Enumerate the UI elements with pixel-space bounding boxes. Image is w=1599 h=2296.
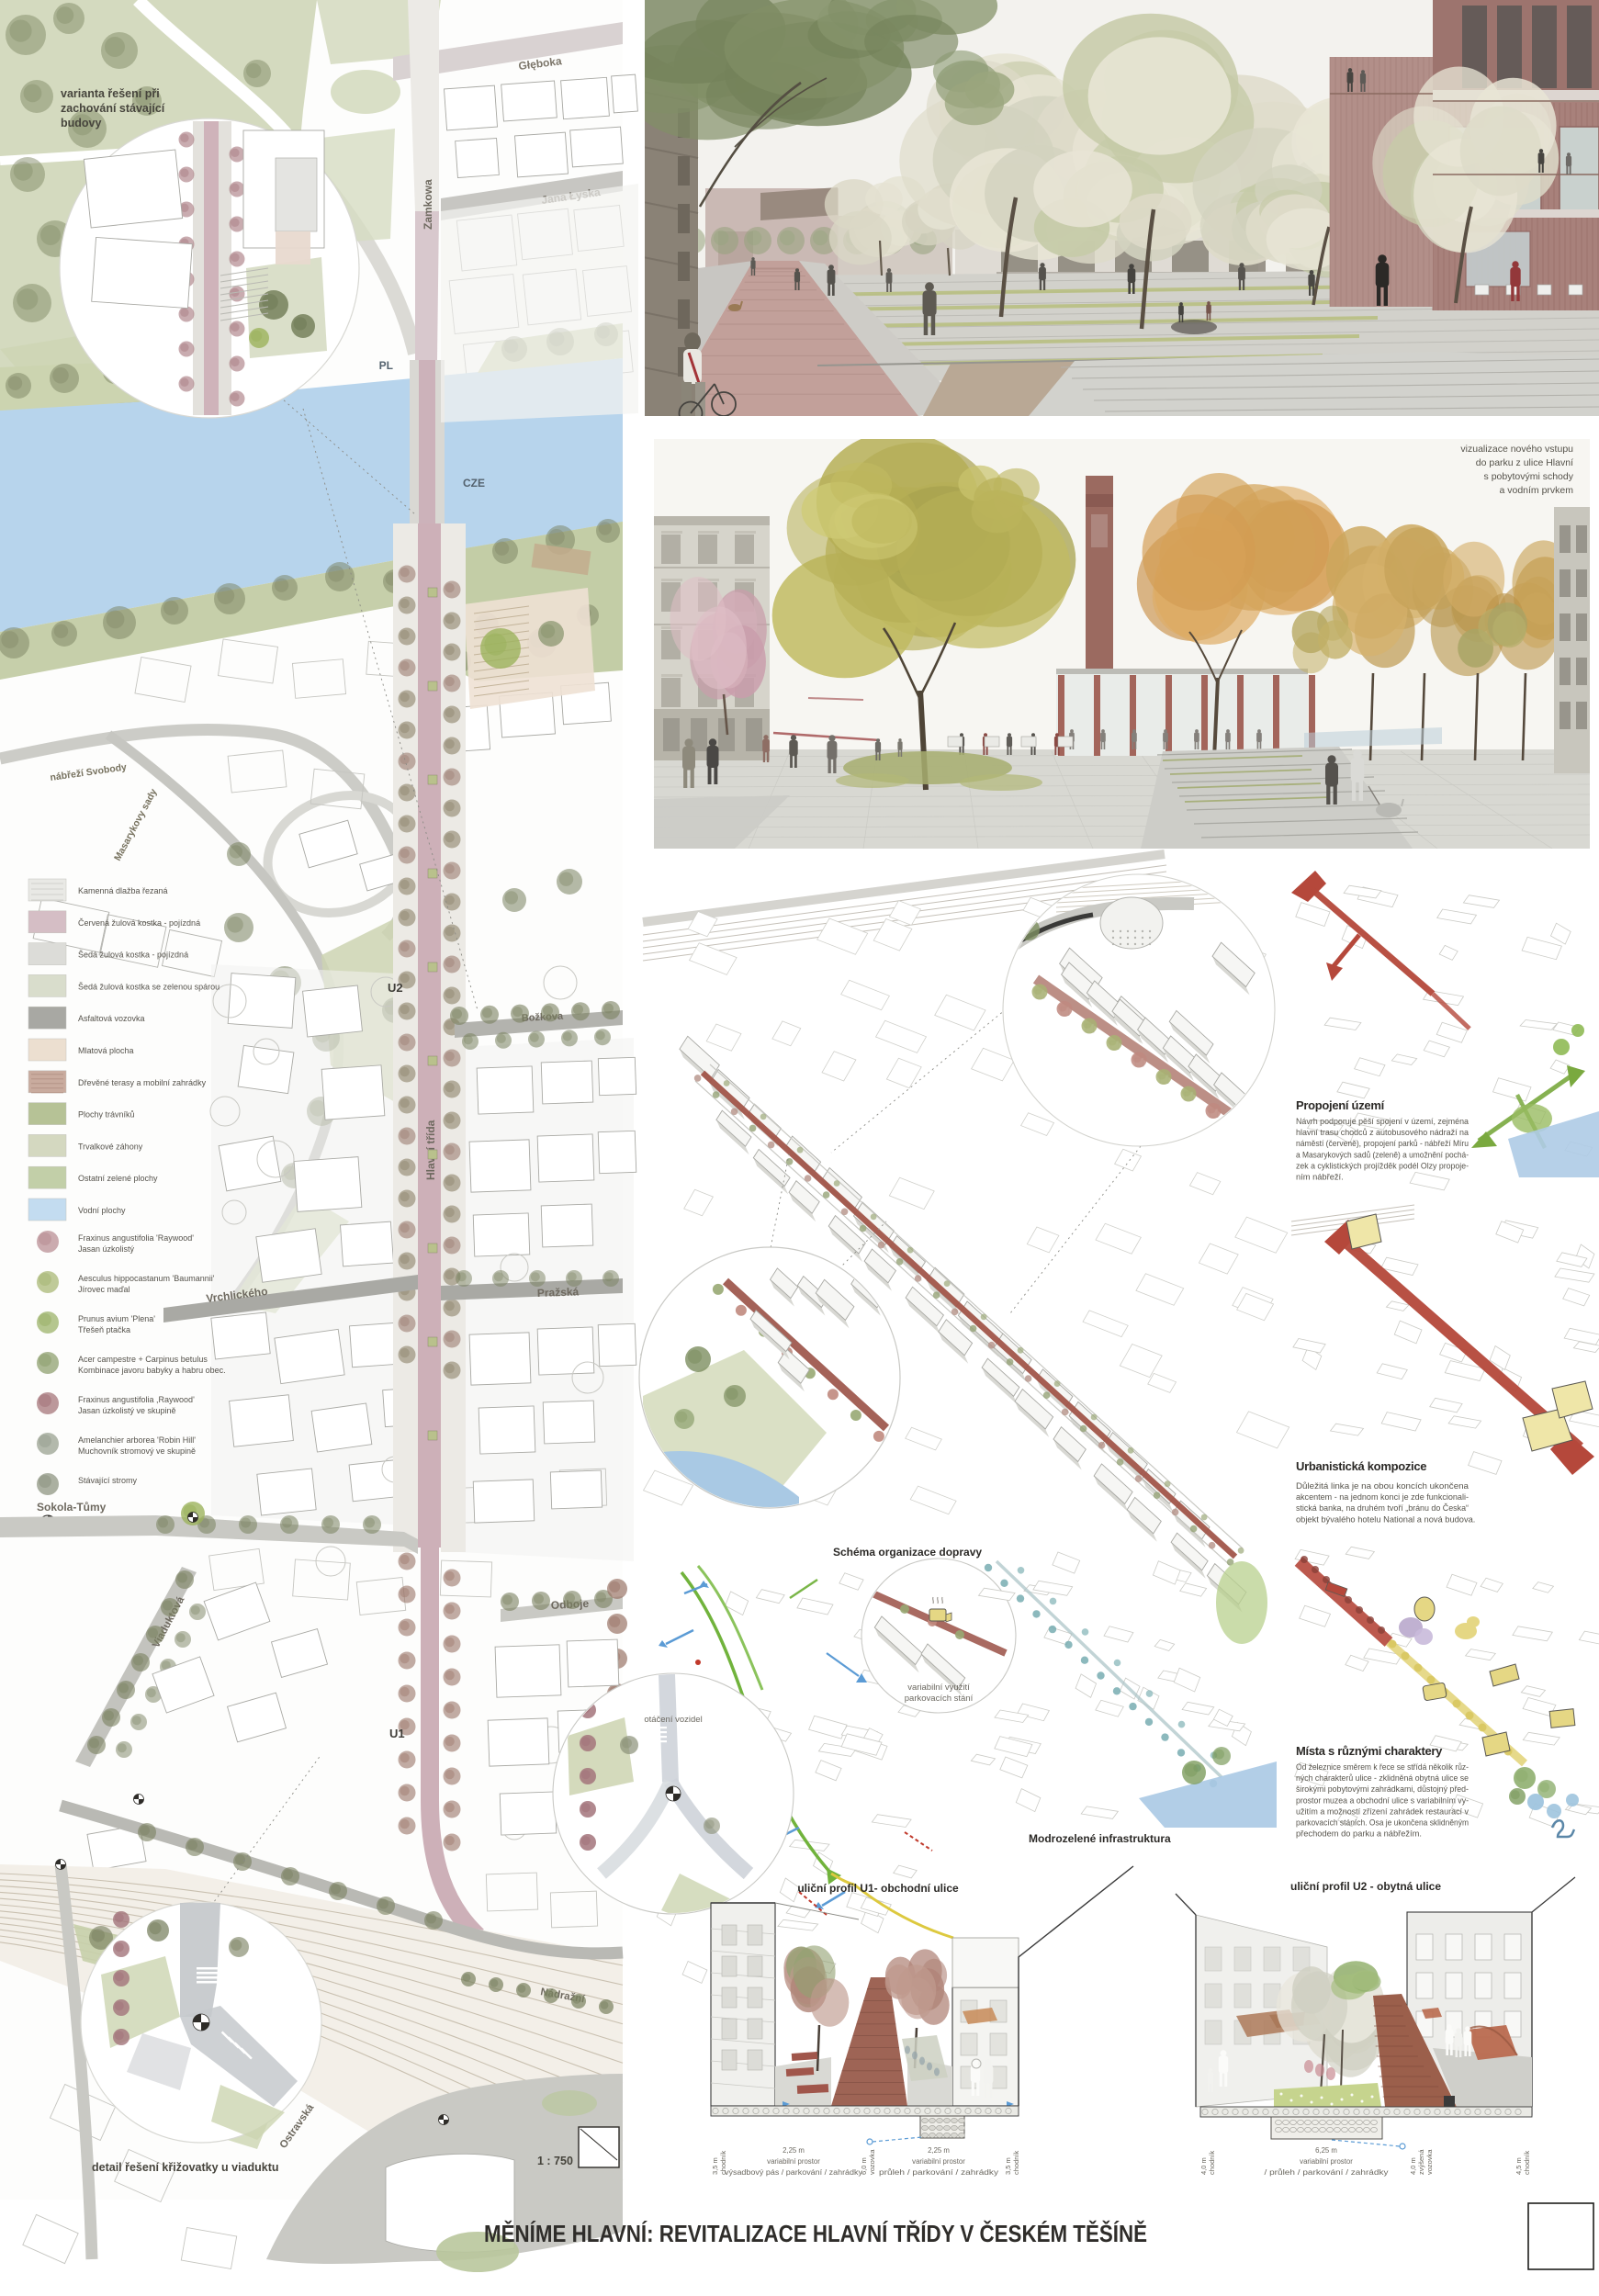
svg-text:4,5 m: 4,5 m xyxy=(1515,2157,1523,2175)
svg-text:Jasan úzkolistý: Jasan úzkolistý xyxy=(78,1244,135,1254)
svg-text:Návrh podporuje pěší spojení v: Návrh podporuje pěší spojení v území, ze… xyxy=(1296,1117,1470,1126)
svg-text:variabilní prostor: variabilní prostor xyxy=(1300,2157,1353,2166)
svg-text:a vodním prvkem: a vodním prvkem xyxy=(1499,485,1573,496)
svg-text:ných charakterů ulice - zklidn: ných charakterů ulice - zklidněná obytná… xyxy=(1296,1773,1469,1783)
svg-text:variabilní prostor: variabilní prostor xyxy=(912,2157,965,2166)
svg-text:vozovka: vozovka xyxy=(1425,2149,1434,2175)
svg-text:stická banka, na druhém tvoří: stická banka, na druhém tvoří „bránu do … xyxy=(1296,1503,1469,1513)
svg-text:zvýšená: zvýšená xyxy=(1417,2149,1425,2175)
svg-text:4,0 m: 4,0 m xyxy=(1409,2157,1417,2175)
svg-text:/ průleh / parkování / zahrádk: / průleh / parkování / zahrádky xyxy=(1265,2168,1389,2177)
svg-text:parkovacích stáních. Osa je uk: parkovacích stáních. Osa je ukončena skl… xyxy=(1296,1818,1469,1828)
svg-text:Muchovník stromový ve skupině: Muchovník stromový ve skupině xyxy=(78,1446,196,1456)
svg-text:zachování stávající: zachování stávající xyxy=(61,102,165,115)
svg-text:Vodní plochy: Vodní plochy xyxy=(78,1206,126,1215)
svg-text:Fraxinus angustifolia ,Raywood: Fraxinus angustifolia ,Raywood' xyxy=(78,1395,195,1404)
svg-text:otáčení vozidel: otáčení vozidel xyxy=(644,1715,702,1725)
svg-text:Pražská: Pražská xyxy=(537,1285,580,1300)
svg-text:uliční profil U2 - obytná ulic: uliční profil U2 - obytná ulice xyxy=(1290,1880,1441,1893)
svg-text:Kamenná dlažba řezaná: Kamenná dlažba řezaná xyxy=(78,886,168,895)
svg-text:chodník: chodník xyxy=(1208,2150,1216,2175)
svg-text:Dřevěné terasy a mobilní zahrá: Dřevěné terasy a mobilní zahrádky xyxy=(78,1078,207,1087)
svg-text:U1: U1 xyxy=(389,1727,405,1740)
svg-text:chodník: chodník xyxy=(1012,2150,1020,2175)
svg-text:Trvalkové záhony: Trvalkové záhony xyxy=(78,1142,143,1151)
svg-text:prostor muzea a obchodní ulice: prostor muzea a obchodní ulice s variabi… xyxy=(1296,1795,1469,1805)
svg-text:širokými pobytovými zahrádkami: širokými pobytovými zahrádkami, důstojný… xyxy=(1296,1784,1469,1794)
svg-text:průleh / parkování / zahrádky: průleh / parkování / zahrádky xyxy=(879,2168,998,2177)
svg-text:3,5 m: 3,5 m xyxy=(1004,2157,1012,2175)
svg-text:6,25 m: 6,25 m xyxy=(1315,2146,1337,2155)
svg-text:zek a cyklistických projížděk: zek a cyklistických projížděk podél Olzy… xyxy=(1296,1161,1469,1170)
svg-text:Prunus avium 'Plena': Prunus avium 'Plena' xyxy=(78,1314,155,1323)
svg-text:Jasan úzkolistý ve skupině: Jasan úzkolistý ve skupině xyxy=(78,1406,176,1415)
svg-text:MĚNÍME HLAVNÍ: REVITALIZACE HL: MĚNÍME HLAVNÍ: REVITALIZACE HLAVNÍ TŘÍDY… xyxy=(484,2220,1147,2247)
svg-text:CZE: CZE xyxy=(463,477,485,490)
svg-text:Schéma organizace dopravy: Schéma organizace dopravy xyxy=(833,1546,982,1559)
svg-text:Od železnice směrem k řece se: Od železnice směrem k řece se střídá něk… xyxy=(1296,1762,1469,1772)
svg-text:Třešeň ptačka: Třešeň ptačka xyxy=(78,1325,130,1334)
svg-text:parkovacích stání: parkovacích stání xyxy=(905,1694,974,1704)
svg-text:Asfaltová vozovka: Asfaltová vozovka xyxy=(78,1014,145,1023)
svg-text:výsadbový pás / parkování / za: výsadbový pás / parkování / zahrádky xyxy=(725,2168,862,2177)
svg-text:vozovka: vozovka xyxy=(868,2149,876,2175)
svg-text:a Masarykových sadů (zeleně) a: a Masarykových sadů (zeleně) a umožnění … xyxy=(1296,1150,1469,1159)
svg-text:Aesculus hippocastanum 'Bauman: Aesculus hippocastanum 'Baumannii' xyxy=(78,1274,215,1283)
svg-text:variabilní využití: variabilní využití xyxy=(907,1683,970,1693)
svg-text:Zamkowa: Zamkowa xyxy=(422,179,434,230)
svg-text:Mlatová plocha: Mlatová plocha xyxy=(78,1046,134,1055)
svg-text:Červená žulová kostka - pojízd: Červená žulová kostka - pojízdná xyxy=(78,918,200,928)
svg-text:akcentem - na jednom konci je: akcentem - na jednom konci je zde funkci… xyxy=(1296,1492,1469,1502)
svg-text:vizualizace nového vstupu: vizualizace nového vstupu xyxy=(1460,444,1573,455)
svg-text:Místa s různými charaktery: Místa s různými charaktery xyxy=(1296,1744,1443,1758)
svg-text:ním nábřeží.: ním nábřeží. xyxy=(1296,1173,1344,1182)
svg-text:Šedá žulová kostka - pojízdná: Šedá žulová kostka - pojízdná xyxy=(78,951,188,960)
svg-text:Amelanchier arborea 'Robin Hil: Amelanchier arborea 'Robin Hill' xyxy=(78,1435,196,1445)
svg-text:užitím a možností zřízení zahr: užitím a možností zřízení zahrádek resta… xyxy=(1296,1806,1469,1816)
svg-text:Kombinace javoru babyky a habr: Kombinace javoru babyky a habru obec. xyxy=(78,1366,226,1375)
svg-text:Jírovec maďal: Jírovec maďal xyxy=(78,1285,130,1294)
svg-text:PL: PL xyxy=(379,359,393,372)
svg-text:Urbanistická kompozice: Urbanistická kompozice xyxy=(1296,1459,1426,1473)
svg-text:chodník: chodník xyxy=(1523,2150,1531,2175)
svg-text:Sokola-Tůmy: Sokola-Tůmy xyxy=(37,1501,107,1514)
svg-text:uliční profil U1- obchodní uli: uliční profil U1- obchodní ulice xyxy=(797,1882,959,1895)
svg-text:do parku z ulice Hlavní: do parku z ulice Hlavní xyxy=(1476,457,1573,468)
svg-text:3,5 m: 3,5 m xyxy=(711,2157,719,2175)
svg-text:Plochy trávníků: Plochy trávníků xyxy=(78,1110,135,1120)
svg-text:detail řešení křižovatky u via: detail řešení křižovatky u viaduktu xyxy=(92,2161,279,2174)
svg-text:Důležitá linka je na obou konc: Důležitá linka je na obou koncích ukonče… xyxy=(1296,1481,1470,1491)
svg-text:budovy: budovy xyxy=(61,117,101,129)
svg-text:Propojení území: Propojení území xyxy=(1296,1098,1385,1112)
svg-text:hlavní trasu chodců z autobuso: hlavní trasu chodců z autobusového nádra… xyxy=(1296,1128,1470,1137)
svg-text:varianta řešení při: varianta řešení při xyxy=(61,87,160,100)
svg-text:Ostatní zelené plochy: Ostatní zelené plochy xyxy=(78,1174,158,1183)
svg-text:U2: U2 xyxy=(388,981,403,995)
svg-text:přechodem do parku a nábřežím.: přechodem do parku a nábřežím. xyxy=(1296,1829,1422,1839)
svg-text:Šedá žulová kostka se zelenou: Šedá žulová kostka se zelenou spárou xyxy=(78,982,220,991)
svg-text:1 : 750: 1 : 750 xyxy=(537,2155,573,2167)
svg-text:Modrozelené infrastruktura: Modrozelené infrastruktura xyxy=(1029,1832,1171,1845)
svg-text:s pobytovými schody: s pobytovými schody xyxy=(1484,471,1574,482)
svg-text:4,0 m: 4,0 m xyxy=(1199,2157,1208,2175)
svg-text:2,25 m: 2,25 m xyxy=(928,2146,950,2155)
svg-text:variabilní prostor: variabilní prostor xyxy=(767,2157,820,2166)
svg-text:Fraxinus angustifolia 'Raywood: Fraxinus angustifolia 'Raywood' xyxy=(78,1233,194,1243)
svg-text:Stávající stromy: Stávající stromy xyxy=(78,1476,138,1485)
svg-text:objekt bývalého hotelu Nationa: objekt bývalého hotelu National a nová b… xyxy=(1296,1514,1475,1524)
svg-text:Acer campestre + Carpinus betu: Acer campestre + Carpinus betulus xyxy=(78,1355,208,1364)
svg-text:náměstí (červeně), propojení p: náměstí (červeně), propojení parků - náb… xyxy=(1296,1139,1469,1148)
svg-text:2,25 m: 2,25 m xyxy=(783,2146,805,2155)
